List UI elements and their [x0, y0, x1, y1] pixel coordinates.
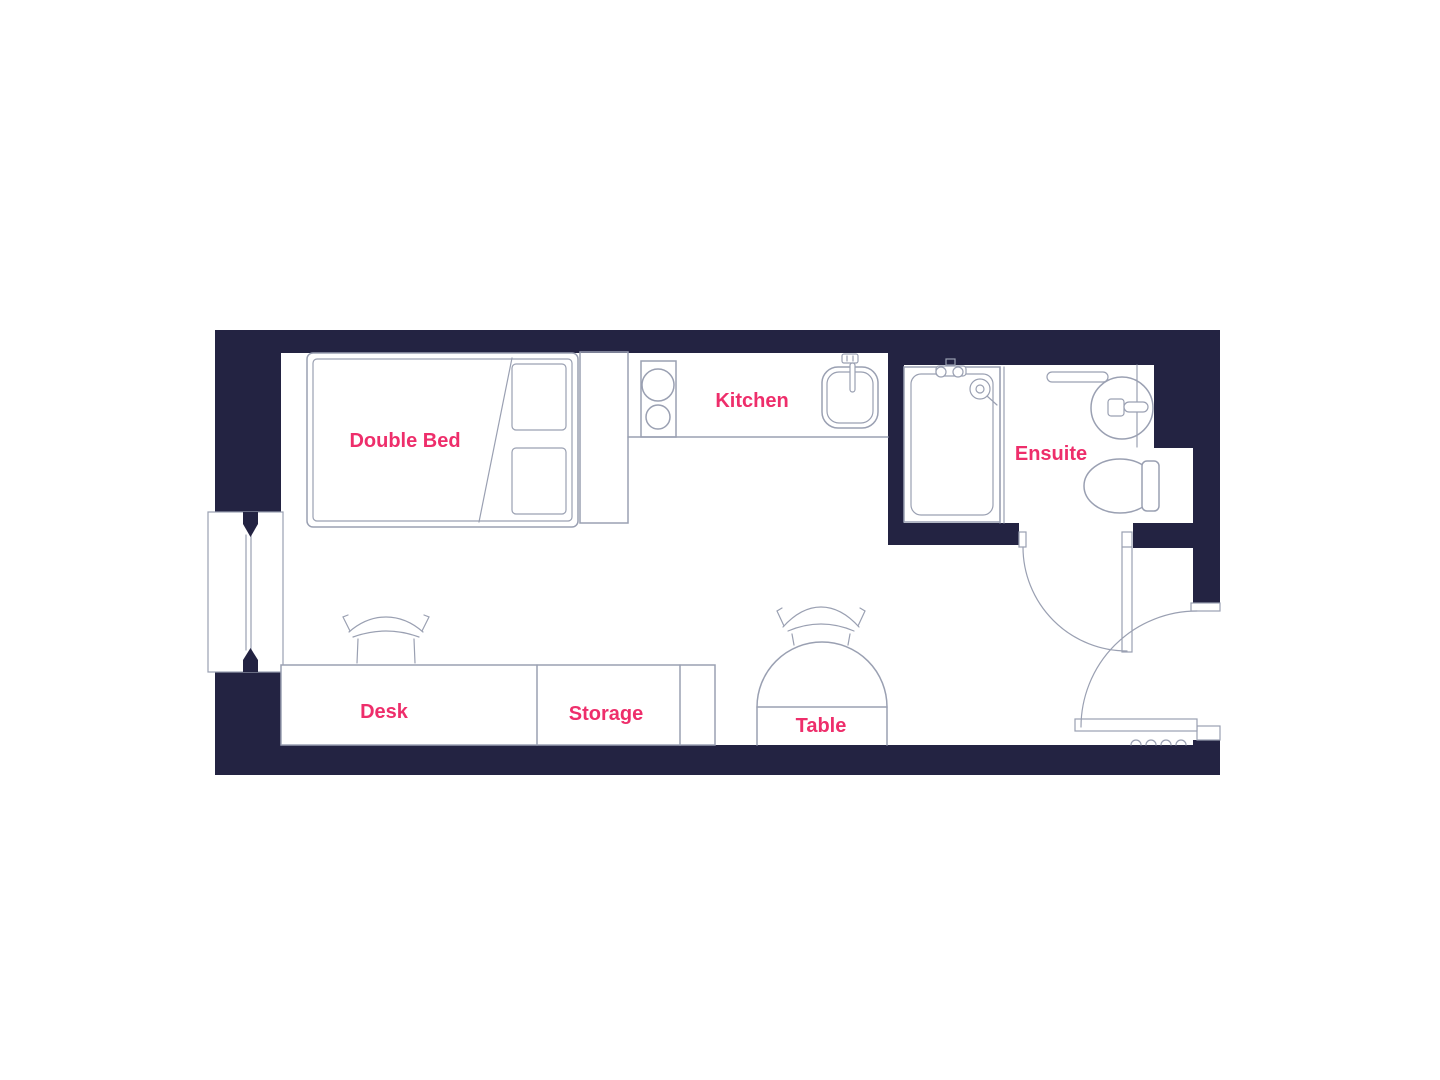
shower: [904, 359, 1004, 523]
basin-tap: [1108, 399, 1124, 416]
pillow: [512, 448, 566, 514]
shower-valve: [953, 367, 963, 377]
label-kitchen: Kitchen: [715, 390, 788, 412]
door-jamb: [1191, 603, 1220, 611]
chair-back-inner: [353, 631, 419, 637]
kitchen-sink: [822, 354, 878, 428]
ensuite-door-arc: [1023, 547, 1127, 651]
wall-ensuite-left: [888, 352, 904, 545]
basin-tap-lever: [1124, 402, 1148, 412]
duvet-fold-line: [479, 358, 512, 522]
label-ensuite: Ensuite: [1015, 443, 1087, 465]
basin-area: [1047, 365, 1153, 447]
floorplan-drawing: Double Bed Kitchen Ensuite Desk Storage …: [0, 0, 1440, 1080]
shower-hose: [987, 396, 997, 405]
door-jamb: [1197, 726, 1220, 740]
ensuite-door: [1019, 532, 1132, 652]
hob-ring: [642, 369, 674, 401]
wall-ensuite-bottom-left: [888, 523, 1019, 545]
wall-recess: [1154, 448, 1193, 523]
door-jamb: [1019, 532, 1026, 547]
label-storage: Storage: [569, 703, 643, 725]
chair-armrest: [777, 608, 784, 626]
tap-spout: [850, 363, 855, 392]
chair-seat: [792, 634, 850, 645]
label-double-bed: Double Bed: [349, 430, 460, 452]
wall-ensuite-right-block: [1154, 352, 1220, 448]
entrance-door-arc: [1081, 611, 1197, 727]
desk-chair: [343, 615, 429, 663]
headboard: [580, 352, 628, 523]
chair-armrest: [858, 608, 865, 626]
chair-seat: [357, 639, 415, 663]
chair-back: [349, 617, 423, 632]
bathroom-shelf: [1047, 372, 1108, 382]
label-table: Table: [796, 715, 847, 737]
desk-counter: [281, 665, 715, 745]
wall-ensuite-bottom-right: [1133, 523, 1197, 548]
table-chair: [777, 607, 865, 645]
threshold-strip: [1131, 740, 1186, 745]
wall-right-lower: [1193, 740, 1220, 775]
toilet-cistern: [1142, 461, 1159, 511]
chair-back-inner: [788, 624, 854, 631]
entrance-door-leaf: [1075, 719, 1197, 731]
label-desk: Desk: [360, 701, 409, 723]
entrance-door: [1075, 603, 1220, 745]
kitchen-hob: [641, 361, 676, 437]
toilet: [1084, 459, 1159, 513]
chair-armrest: [422, 615, 429, 631]
tap-base: [842, 354, 858, 363]
hob-ring: [646, 405, 670, 429]
chair-armrest: [343, 615, 350, 631]
desk-storage-run: [281, 665, 715, 745]
window: [208, 512, 283, 672]
wall-bottom: [215, 745, 1220, 775]
floorplan-canvas: Double Bed Kitchen Ensuite Desk Storage …: [0, 0, 1440, 1080]
shower-valve: [936, 367, 946, 377]
pillow: [512, 364, 566, 430]
